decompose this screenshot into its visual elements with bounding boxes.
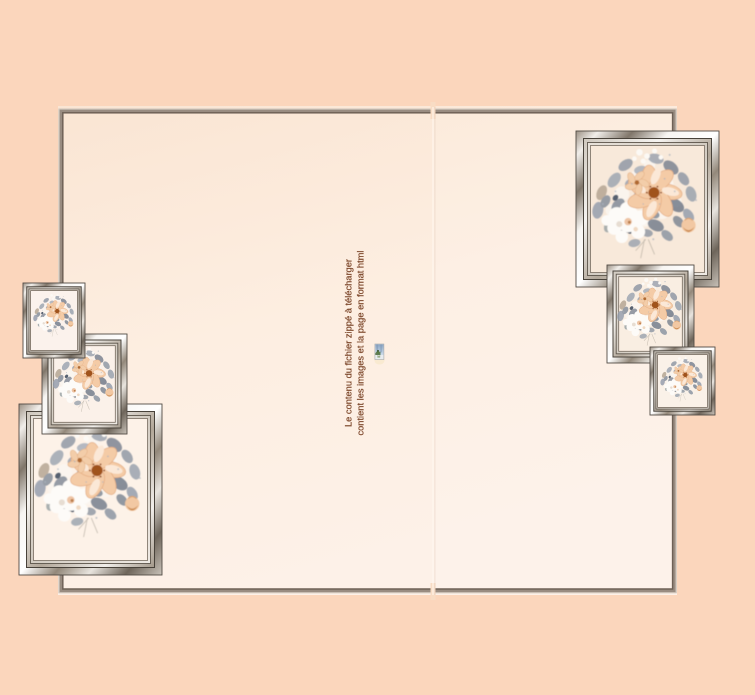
svg-text:Le contenu du fichier zippé à: Le contenu du fichier zippé à télécharge… [344, 259, 354, 427]
svg-text:contient les images et la page: contient les images et la page en format… [356, 250, 366, 435]
